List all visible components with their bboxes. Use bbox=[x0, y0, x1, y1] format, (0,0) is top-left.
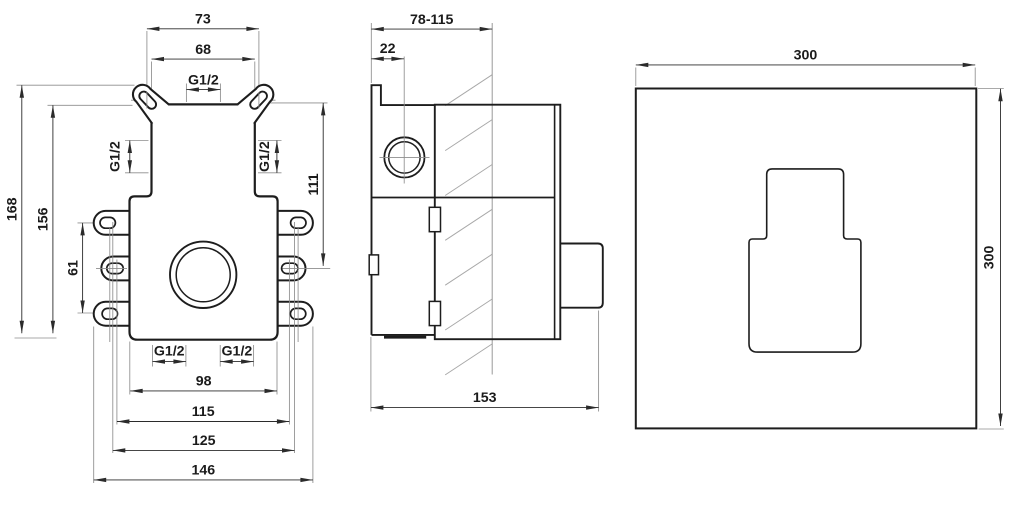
svg-text:G1/2: G1/2 bbox=[257, 141, 273, 172]
svg-text:22: 22 bbox=[380, 41, 396, 57]
svg-text:156: 156 bbox=[36, 207, 52, 231]
svg-text:G1/2: G1/2 bbox=[188, 72, 219, 88]
svg-text:125: 125 bbox=[192, 433, 216, 449]
svg-text:115: 115 bbox=[192, 404, 215, 420]
svg-text:300: 300 bbox=[981, 245, 997, 269]
svg-text:G1/2: G1/2 bbox=[108, 141, 124, 172]
svg-text:78-115: 78-115 bbox=[410, 12, 454, 28]
svg-text:300: 300 bbox=[794, 47, 818, 63]
svg-text:G1/2: G1/2 bbox=[222, 343, 253, 359]
svg-text:168: 168 bbox=[5, 197, 21, 221]
svg-text:G1/2: G1/2 bbox=[154, 343, 185, 359]
svg-text:153: 153 bbox=[473, 390, 497, 406]
svg-text:111: 111 bbox=[306, 173, 322, 195]
svg-text:146: 146 bbox=[191, 462, 215, 478]
svg-text:73: 73 bbox=[195, 12, 211, 28]
svg-text:68: 68 bbox=[195, 42, 211, 58]
svg-text:61: 61 bbox=[65, 260, 81, 276]
svg-text:98: 98 bbox=[196, 373, 212, 389]
